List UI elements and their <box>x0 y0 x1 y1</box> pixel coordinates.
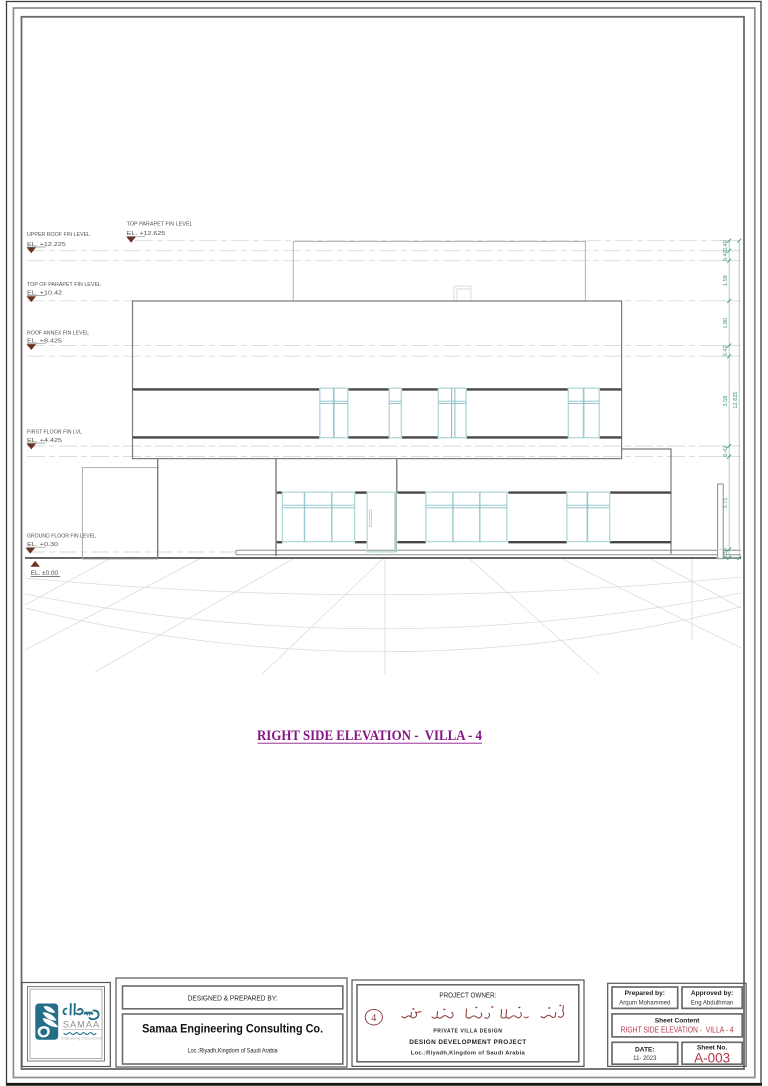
svg-text:A-003: A-003 <box>694 1050 730 1065</box>
svg-text:TOP OF PARAPET FIN LEVEL: TOP OF PARAPET FIN LEVEL <box>27 282 102 288</box>
svg-text:0.40: 0.40 <box>723 240 729 251</box>
svg-text:SAMAA: SAMAA <box>63 1020 100 1030</box>
svg-text:0.40: 0.40 <box>723 250 729 261</box>
svg-text:3.58: 3.58 <box>723 396 729 407</box>
svg-text:Loc.:Riyadh,Kingdom of Saudi A: Loc.:Riyadh,Kingdom of Saudi Arabia <box>188 1048 278 1055</box>
svg-text:Prepared by:: Prepared by: <box>625 990 665 997</box>
svg-text:GROUND FLOOR FIN LEVEL: GROUND FLOOR FIN LEVEL <box>27 534 97 540</box>
svg-text:3.71: 3.71 <box>723 498 729 509</box>
svg-text:PROJECT OWNER:: PROJECT OWNER: <box>439 993 496 1000</box>
svg-text:FIRST FLOOR FIN LVL: FIRST FLOOR FIN LVL <box>27 430 83 436</box>
svg-text:Samaa Engineering Consulting C: Samaa Engineering Consulting Co. <box>142 1022 323 1036</box>
svg-text:1.80: 1.80 <box>723 318 729 329</box>
svg-text:Loc.:Riyadh,Kingdom of Saudi A: Loc.:Riyadh,Kingdom of Saudi Arabia <box>411 1051 526 1057</box>
svg-text:ROOF ANNEX FIN LEVEL: ROOF ANNEX FIN LEVEL <box>27 330 90 336</box>
svg-text:4: 4 <box>371 1013 376 1024</box>
svg-text:DESIGN DEVELOPMENT PROJECT: DESIGN DEVELOPMENT PROJECT <box>409 1039 526 1046</box>
svg-text:12.625: 12.625 <box>733 391 739 408</box>
svg-text:Engineering Consultation: Engineering Consultation <box>61 1037 101 1041</box>
svg-text:Eng Abdulhman: Eng Abdulhman <box>691 1000 733 1006</box>
svg-text:Sheet Content: Sheet Content <box>655 1017 700 1024</box>
svg-text:UPPER ROOF FIN LEVEL: UPPER ROOF FIN LEVEL <box>27 232 91 238</box>
svg-text:DESIGNED & PREPARED BY:: DESIGNED & PREPARED BY: <box>188 993 278 1002</box>
svg-text:11- 2023: 11- 2023 <box>633 1056 657 1062</box>
svg-text:1.58: 1.58 <box>723 275 729 286</box>
svg-text:TOP PARAPET FIN LEVEL: TOP PARAPET FIN LEVEL <box>127 222 194 228</box>
svg-text:PRIVATE VILLA DESIGN: PRIVATE VILLA DESIGN <box>433 1029 502 1035</box>
svg-text:0.42: 0.42 <box>723 446 729 457</box>
svg-text:0.30: 0.30 <box>723 548 729 559</box>
svg-text:0.42: 0.42 <box>723 345 729 356</box>
svg-text:RIGHT SIDE ELEVATION - VILLA: RIGHT SIDE ELEVATION - VILLA - 4 <box>257 728 482 744</box>
svg-text:EL. ±0.00: EL. ±0.00 <box>31 570 59 577</box>
svg-text:DATE:: DATE: <box>635 1046 655 1053</box>
svg-text:Approved by:: Approved by: <box>691 990 734 997</box>
svg-text:RIGHT SIDE ELEVATION - VILLA: RIGHT SIDE ELEVATION - VILLA - 4 <box>621 1026 735 1035</box>
svg-text:Arqum Mohammed: Arqum Mohammed <box>619 1000 670 1006</box>
